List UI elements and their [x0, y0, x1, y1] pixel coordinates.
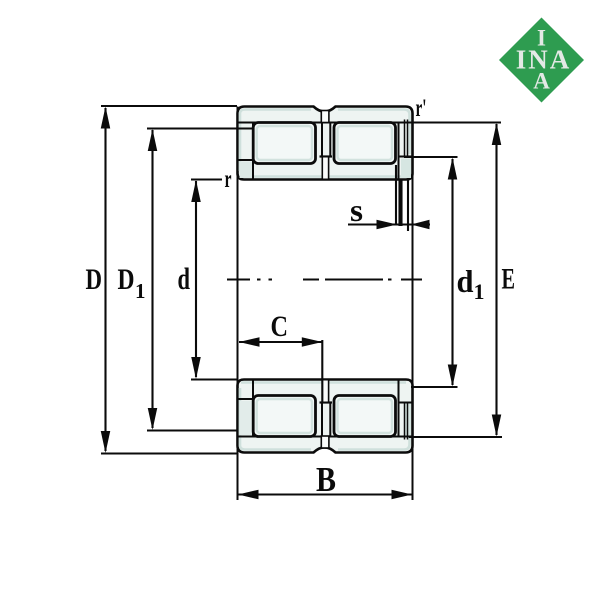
svg-text:r: r: [225, 166, 232, 193]
svg-text:D: D: [118, 263, 135, 296]
svg-text:E: E: [502, 263, 516, 296]
svg-text:s: s: [350, 192, 363, 228]
svg-text:d: d: [457, 263, 474, 299]
svg-text:C: C: [271, 310, 289, 343]
svg-text:A: A: [533, 69, 550, 94]
svg-text:r': r': [416, 95, 427, 122]
svg-text:B: B: [316, 460, 336, 499]
svg-text:D: D: [86, 263, 103, 296]
svg-text:1: 1: [474, 279, 485, 304]
svg-text:d: d: [178, 261, 191, 296]
svg-text:1: 1: [135, 279, 146, 303]
